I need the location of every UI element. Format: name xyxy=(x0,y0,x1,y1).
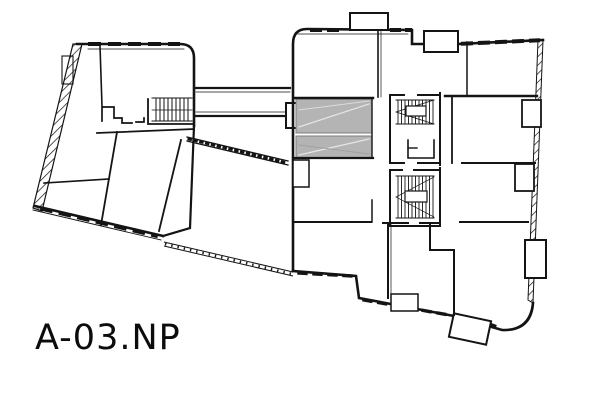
right-wing xyxy=(293,13,546,345)
floor-plan-canvas: A-03.NP xyxy=(0,0,600,404)
top-step-bay xyxy=(424,31,458,52)
bridge-corridor xyxy=(187,88,305,165)
left-wing-hatched-wall xyxy=(33,44,82,211)
roof-shaft-box xyxy=(350,13,388,30)
left-wing xyxy=(33,44,194,240)
entrance-canopy xyxy=(449,313,491,344)
facade-bay xyxy=(522,100,541,127)
bottom-step-bay xyxy=(391,294,418,311)
floor-plan-drawing: A-03.NP xyxy=(0,0,600,404)
facade-bay xyxy=(515,164,534,191)
balcony-box xyxy=(525,240,546,278)
left-wing-stair xyxy=(148,98,193,124)
wall-jog xyxy=(293,160,309,187)
stairwell-2 xyxy=(390,168,440,226)
right-wing-partitions xyxy=(295,31,537,315)
floor-label: A-03.NP xyxy=(35,318,181,358)
ramp-shaded-area xyxy=(293,98,373,158)
stairwell-1 xyxy=(390,93,440,165)
site-boundary-wall xyxy=(164,242,293,276)
partition-wall xyxy=(159,140,181,231)
